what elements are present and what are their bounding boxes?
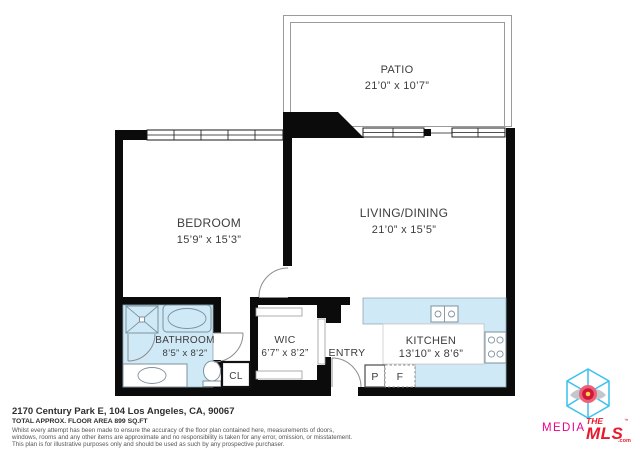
logo-cube-icon xyxy=(567,369,609,418)
wic-door-panel xyxy=(318,319,325,364)
bedroom-door-swing xyxy=(259,268,288,298)
closet-label: CL xyxy=(229,371,243,382)
disclaimer-line: This plan is for illustrative purposes o… xyxy=(12,441,482,448)
footer: 2170 Century Park E, 104 Los Angeles, CA… xyxy=(12,406,482,449)
bathroom-label: BATHROOM xyxy=(155,335,214,346)
disclaimer: Whilst every attempt has been made to en… xyxy=(12,427,482,449)
bedroom-dims: 15’9” x 15’3” xyxy=(177,234,241,246)
closet-rail-bottom xyxy=(256,371,302,379)
living-dims: 21’0” x 15’5” xyxy=(372,224,436,236)
chamfer-wall xyxy=(283,112,364,138)
disclaimer-line: windows, rooms and any other items are a… xyxy=(12,434,482,441)
toilet xyxy=(203,361,221,387)
logo-eye-center xyxy=(586,392,591,397)
patio-area: PATIO 21’0” x 10’7” xyxy=(284,16,512,127)
living-dining-area: LIVING/DINING 21’0” x 15’5” xyxy=(360,206,449,236)
patio-dims: 21’0” x 10’7” xyxy=(365,80,429,92)
bedroom-area: BEDROOM 15’9” x 15’3” xyxy=(177,216,288,298)
closet-rail-top xyxy=(256,308,302,316)
bathroom-dims: 8’5” x 8’2” xyxy=(162,348,207,359)
patio-label: PATIO xyxy=(381,64,414,76)
stove xyxy=(485,332,506,363)
living-label: LIVING/DINING xyxy=(360,206,449,220)
fridge-label: F xyxy=(397,371,404,383)
kitchen-sink xyxy=(431,306,458,322)
entry-door-swing xyxy=(332,358,361,387)
bathroom-door-swing xyxy=(214,333,243,362)
wic-area: WIC 6’7” x 8’2” xyxy=(256,308,325,379)
pantry: P xyxy=(365,365,385,387)
balcony-sliding-door xyxy=(363,128,505,137)
property-address: 2170 Century Park E, 104 Los Angeles, CA… xyxy=(12,406,482,417)
kitchen-label: KITCHEN xyxy=(406,335,456,347)
bedroom-window xyxy=(147,130,283,140)
entry-label: ENTRY xyxy=(329,347,366,359)
bedroom-label: BEDROOM xyxy=(177,216,241,230)
fridge: F xyxy=(385,365,415,387)
logo-com-text: .com xyxy=(618,438,631,444)
logo-media-text: MEDIA xyxy=(542,422,585,434)
hall-closet: CL xyxy=(222,362,250,387)
bathroom-sink xyxy=(123,364,187,387)
disclaimer-line: Whilst every attempt has been made to en… xyxy=(12,427,482,434)
kitchen-area: KITCHEN 13’10” x 8’6” P F xyxy=(363,298,506,387)
themls-logo: MEDIA THE MLS ™ .com xyxy=(536,364,638,450)
wic-label: WIC xyxy=(274,334,295,346)
floor-plan-page: PATIO 21’0” x 10’7” xyxy=(0,0,640,453)
wic-dims: 6’7” x 8’2” xyxy=(261,348,308,359)
pantry-label: P xyxy=(371,371,378,383)
logo-tm-mark: ™ xyxy=(624,418,629,423)
kitchen-dims: 13’10” x 8’6” xyxy=(399,348,463,360)
shower xyxy=(126,306,158,333)
bathtub xyxy=(163,305,211,332)
entry-area: ENTRY xyxy=(329,347,366,387)
floor-area-note: TOTAL APPROX. FLOOR AREA 899 SQ.FT xyxy=(12,417,482,426)
